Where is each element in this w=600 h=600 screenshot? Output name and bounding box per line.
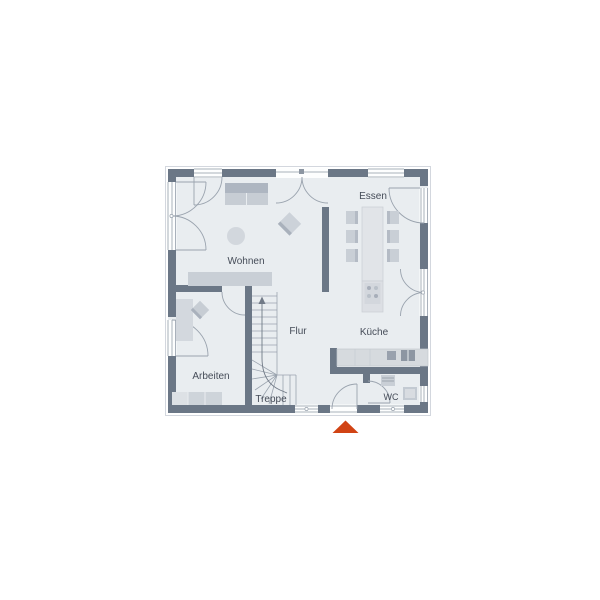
room-label-flur: Flur bbox=[289, 326, 307, 337]
window-wc-bottom bbox=[380, 405, 404, 415]
window-top-right bbox=[368, 168, 404, 178]
floor-plan-page: Wohnen Essen Flur Küche Arbeiten Treppe … bbox=[0, 0, 600, 600]
dining-table bbox=[362, 207, 383, 281]
desk-office bbox=[176, 299, 193, 341]
window-hall bbox=[295, 405, 318, 415]
entrance-arrow-marker bbox=[333, 421, 359, 434]
room-label-wohnen: Wohnen bbox=[227, 256, 264, 267]
kitchen-island bbox=[362, 281, 383, 312]
room-label-treppe: Treppe bbox=[255, 394, 287, 405]
coffee-table bbox=[227, 227, 245, 245]
room-label-arbeiten: Arbeiten bbox=[192, 371, 229, 382]
shelf-office bbox=[172, 392, 222, 405]
room-label-wc: WC bbox=[384, 392, 399, 402]
window-wc-side bbox=[420, 386, 430, 402]
wc-washbasin bbox=[403, 387, 417, 400]
kitchen-counter bbox=[337, 349, 428, 366]
wc-radiator bbox=[381, 375, 395, 386]
sideboard-living bbox=[188, 272, 272, 286]
room-label-essen: Essen bbox=[359, 191, 387, 202]
floor-plan: Wohnen Essen Flur Küche Arbeiten Treppe … bbox=[0, 0, 600, 600]
sink bbox=[387, 351, 396, 360]
room-label-kueche: Küche bbox=[360, 327, 389, 338]
